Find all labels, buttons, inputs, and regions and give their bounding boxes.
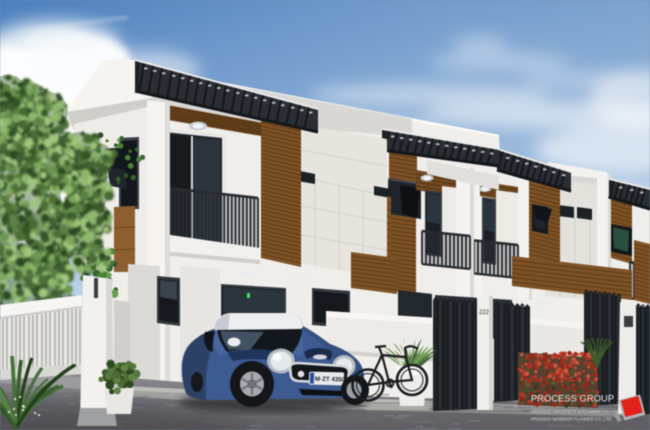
svg-text:M·ZT 4350: M·ZT 4350	[315, 376, 346, 384]
svg-text:222: 222	[479, 310, 490, 316]
svg-text:PROCESS ARCHITECT & PLANNER CO: PROCESS ARCHITECT & PLANNER CO.,LTD.	[531, 410, 620, 415]
svg-text:PROCESS INTERIOR PLANNER CO.,L: PROCESS INTERIOR PLANNER CO.,LTD.	[531, 417, 612, 422]
svg-text:PROCESS GROUP: PROCESS GROUP	[531, 394, 614, 404]
